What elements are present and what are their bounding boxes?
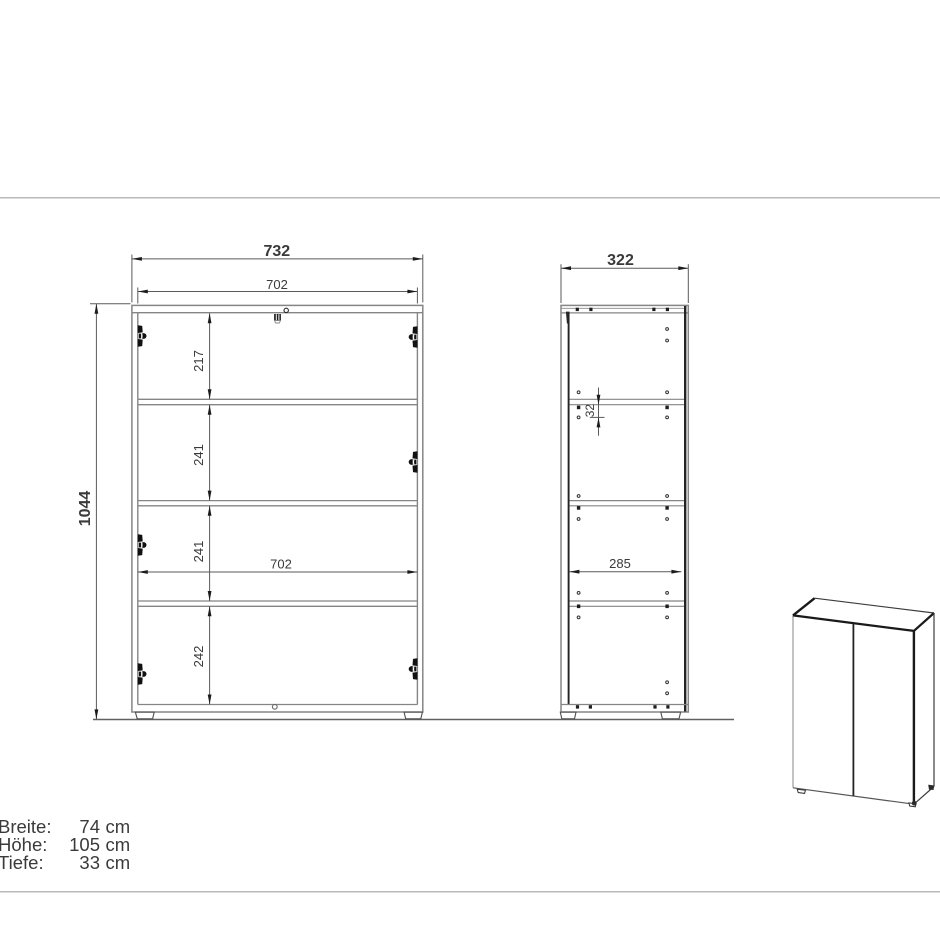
svg-text:702: 702	[266, 277, 288, 292]
svg-text:285: 285	[609, 556, 631, 571]
svg-text:Tiefe:: Tiefe:	[0, 852, 44, 873]
svg-text:1044: 1044	[77, 491, 94, 527]
svg-text:732: 732	[263, 243, 290, 260]
svg-text:217: 217	[191, 350, 206, 372]
svg-text:241: 241	[191, 444, 206, 466]
svg-text:242: 242	[191, 646, 206, 668]
svg-text:cm: cm	[106, 852, 131, 873]
svg-text:322: 322	[607, 252, 634, 269]
svg-text:32: 32	[583, 404, 597, 418]
svg-text:241: 241	[191, 541, 206, 563]
svg-text:33: 33	[79, 852, 100, 873]
svg-text:702: 702	[270, 557, 292, 572]
